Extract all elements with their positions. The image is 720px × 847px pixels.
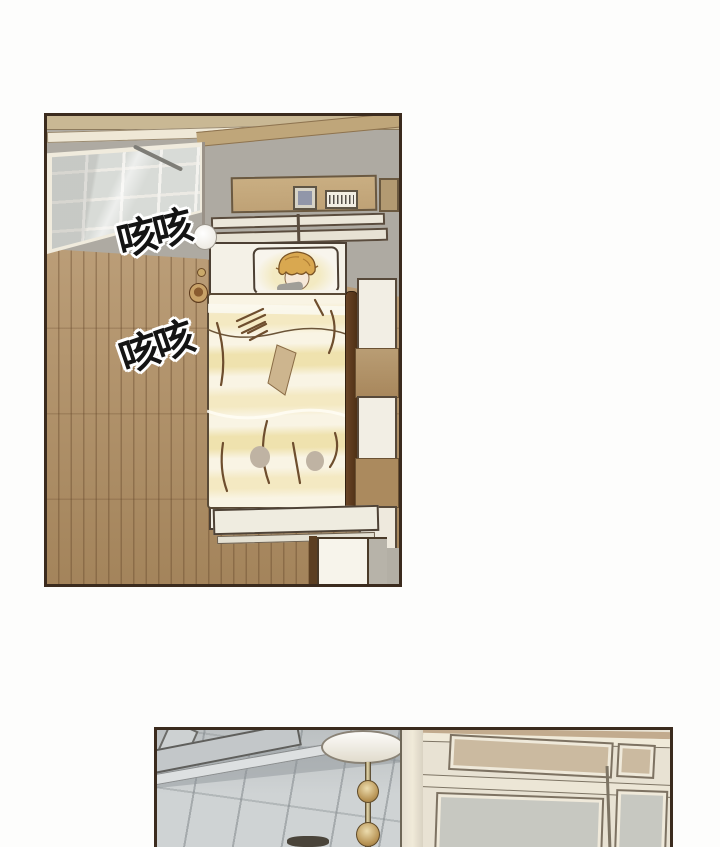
wood-cabinet: [423, 730, 670, 847]
window-side-frame: [202, 142, 205, 234]
panel-bedroom-overhead: 咳咳 咳咳: [44, 113, 402, 587]
radio-clock: [325, 190, 358, 209]
cabinet-inset-tan-small: [618, 745, 654, 777]
alarm-clock: [189, 283, 208, 303]
footboard: [213, 505, 380, 535]
floor-knob: [197, 268, 206, 277]
cabinet-divider: [606, 766, 612, 847]
photo-picture: [298, 191, 312, 205]
nightstand-edge: [309, 536, 317, 584]
cabinet-inset-gray-right: [616, 791, 666, 847]
nightstand: [317, 537, 369, 584]
side-shelf-gap: [355, 458, 399, 508]
floor-dark-object: [287, 836, 329, 847]
photo-frame: [293, 186, 317, 210]
cabinet-inset-gray: [436, 794, 602, 847]
panel-room-corner: [154, 727, 673, 847]
lamp-pole-knob: [357, 780, 379, 803]
comic-page: 咳咳 咳咳: [0, 0, 720, 847]
side-shelf-box: [357, 396, 397, 460]
blanket-creases: [207, 293, 349, 509]
radio-grill: [329, 195, 354, 204]
headboard-shelf-end: [379, 178, 399, 212]
side-shelf-gap: [355, 348, 399, 398]
paper-ball: [193, 224, 217, 250]
nightstand-side: [369, 537, 387, 584]
lamp-shade: [321, 730, 405, 764]
side-shelf-box: [357, 278, 397, 350]
lamp-pole-knob: [356, 822, 380, 847]
white-post: [400, 730, 424, 847]
